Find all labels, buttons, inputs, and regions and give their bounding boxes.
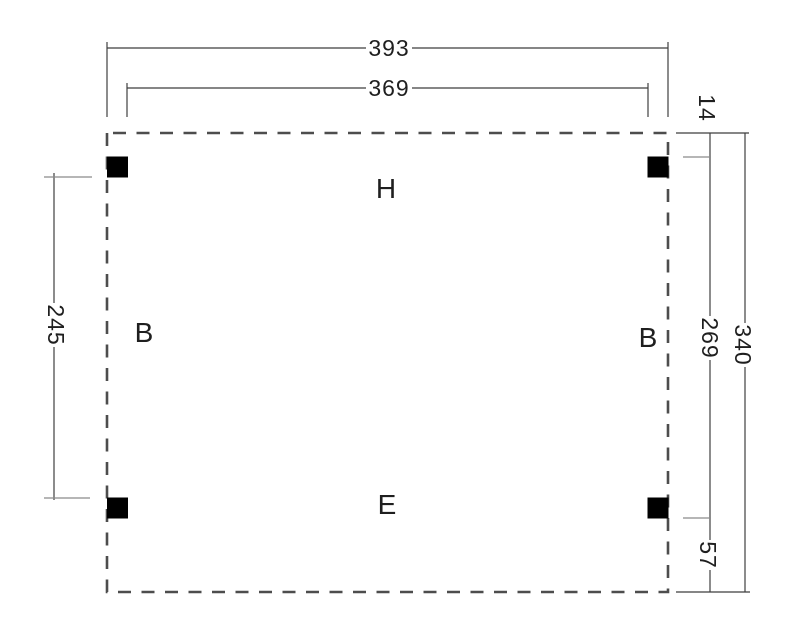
post-top-right: [648, 157, 669, 178]
dim-245-label: 245: [43, 304, 69, 345]
dim-14-label: 14: [694, 94, 720, 122]
dim-340-label: 340: [730, 324, 756, 365]
dim-393-label: 393: [368, 35, 409, 61]
area-label-b-left: B: [135, 317, 154, 348]
dim-269-label: 269: [697, 317, 723, 358]
post-bottom-left: [107, 498, 128, 519]
dim-57-label: 57: [695, 541, 721, 569]
post-top-left: [107, 157, 128, 178]
drawing-canvas: 393 369 245 14 269 340 57 H B B E: [0, 0, 800, 622]
post-bottom-right: [648, 498, 669, 519]
area-label-h: H: [376, 173, 396, 204]
area-label-b-right: B: [639, 322, 658, 353]
floor-plan-svg: 393 369 245 14 269 340 57 H B B E: [0, 0, 800, 622]
area-label-e: E: [378, 489, 397, 520]
dim-369-label: 369: [368, 75, 409, 101]
